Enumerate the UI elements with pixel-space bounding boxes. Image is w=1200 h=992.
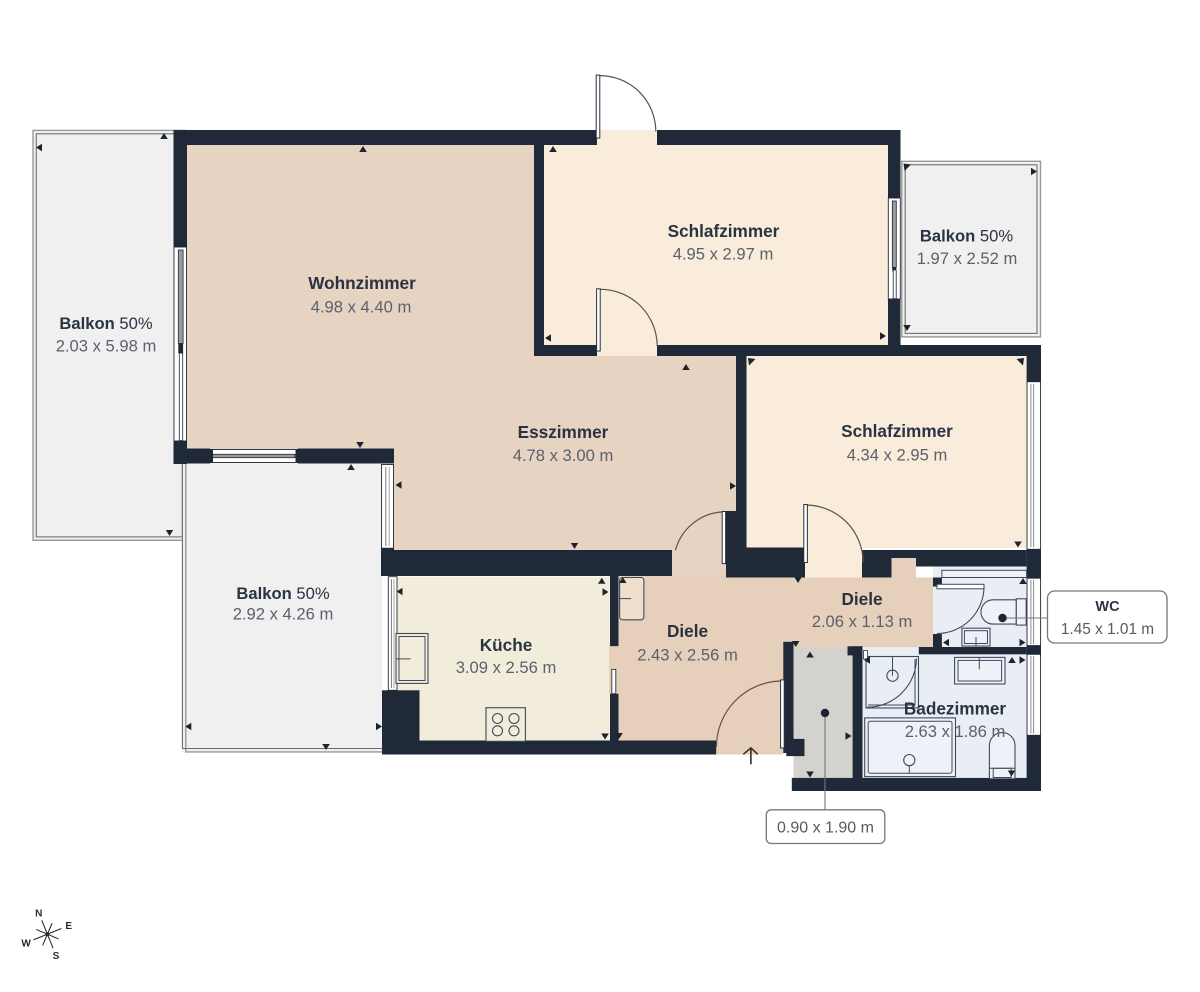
svg-text:Diele: Diele — [841, 589, 882, 609]
svg-text:W: W — [21, 938, 31, 949]
svg-text:1.97 x 2.52 m: 1.97 x 2.52 m — [917, 249, 1018, 268]
svg-text:N: N — [35, 908, 42, 919]
svg-text:Balkon 50%: Balkon 50% — [59, 314, 152, 333]
svg-text:Schlafzimmer: Schlafzimmer — [841, 421, 953, 441]
svg-text:0.90 x 1.90 m: 0.90 x 1.90 m — [777, 820, 874, 837]
svg-text:2.06 x 1.13 m: 2.06 x 1.13 m — [812, 612, 913, 631]
svg-text:2.03 x 5.98 m: 2.03 x 5.98 m — [56, 337, 157, 356]
svg-text:Schlafzimmer: Schlafzimmer — [668, 221, 780, 241]
svg-text:2.92 x 4.26 m: 2.92 x 4.26 m — [233, 605, 334, 624]
svg-text:Diele: Diele — [667, 621, 708, 641]
svg-text:4.98 x 4.40 m: 4.98 x 4.40 m — [311, 298, 412, 317]
svg-text:2.43 x 2.56 m: 2.43 x 2.56 m — [637, 646, 738, 665]
svg-text:3.09 x 2.56 m: 3.09 x 2.56 m — [456, 658, 557, 677]
svg-text:1.45 x 1.01 m: 1.45 x 1.01 m — [1061, 621, 1154, 638]
svg-text:E: E — [65, 921, 72, 932]
svg-text:4.95 x 2.97 m: 4.95 x 2.97 m — [673, 245, 774, 264]
svg-text:2.63 x 1.86 m: 2.63 x 1.86 m — [905, 722, 1006, 741]
svg-text:Küche: Küche — [480, 635, 533, 655]
svg-text:Esszimmer: Esszimmer — [518, 422, 609, 442]
svg-text:4.78 x 3.00 m: 4.78 x 3.00 m — [513, 446, 614, 465]
svg-text:4.34 x 2.95 m: 4.34 x 2.95 m — [847, 446, 948, 465]
svg-text:Balkon 50%: Balkon 50% — [920, 227, 1013, 246]
svg-text:WC: WC — [1095, 599, 1120, 615]
svg-text:Wohnzimmer: Wohnzimmer — [308, 273, 416, 293]
svg-text:S: S — [53, 951, 60, 962]
svg-text:Balkon 50%: Balkon 50% — [236, 584, 329, 603]
svg-text:Badezimmer: Badezimmer — [904, 699, 1007, 719]
